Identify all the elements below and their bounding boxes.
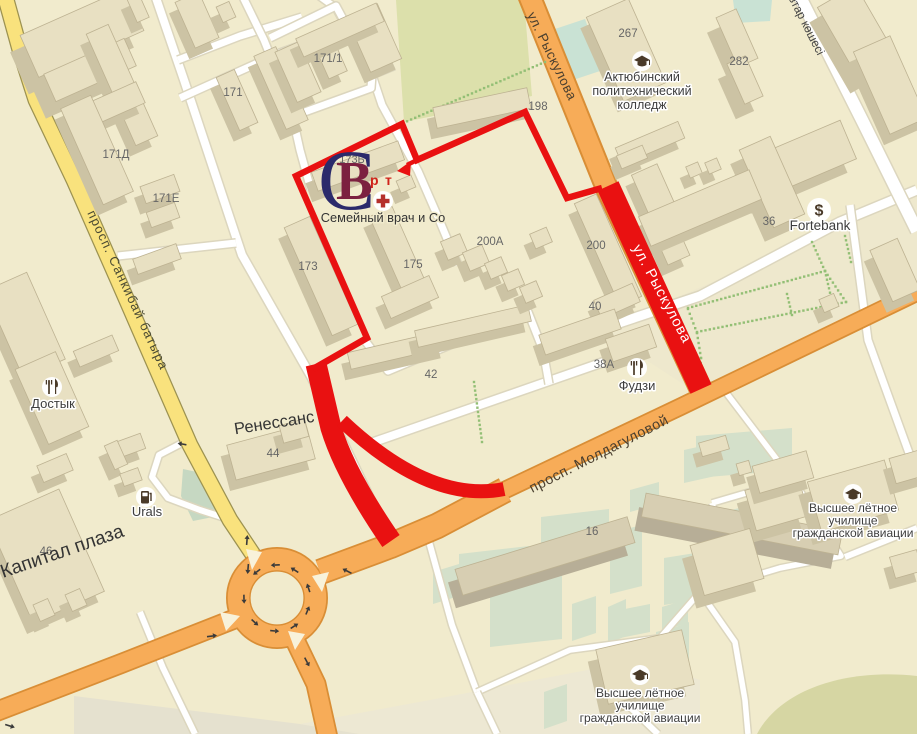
svg-text:200А: 200А — [477, 236, 504, 248]
svg-text:колледж: колледж — [617, 98, 667, 112]
svg-text:267: 267 — [618, 28, 637, 40]
svg-text:Urals: Urals — [132, 504, 163, 519]
svg-text:36: 36 — [763, 216, 776, 228]
svg-text:В: В — [336, 150, 373, 211]
svg-text:р: р — [370, 172, 379, 188]
svg-text:171Д: 171Д — [103, 149, 130, 161]
svg-text:175: 175 — [403, 259, 422, 271]
svg-text:политехнический: политехнический — [592, 84, 691, 98]
svg-text:16: 16 — [586, 526, 599, 538]
svg-text:173: 173 — [298, 261, 317, 273]
svg-text:198: 198 — [528, 101, 547, 113]
svg-text:42: 42 — [425, 369, 438, 381]
svg-text:200: 200 — [586, 240, 605, 252]
svg-text:$: $ — [815, 203, 824, 220]
svg-text:гражданской авиации: гражданской авиации — [793, 526, 914, 540]
svg-text:Достык: Достык — [31, 396, 75, 411]
svg-text:т: т — [385, 172, 392, 188]
svg-text:Фудзи: Фудзи — [619, 378, 656, 393]
svg-text:38А: 38А — [594, 359, 615, 371]
svg-text:гражданской авиации: гражданской авиации — [580, 711, 701, 725]
svg-text:Семейный врач и Со: Семейный врач и Со — [321, 210, 445, 225]
svg-text:171: 171 — [223, 87, 242, 99]
svg-text:282: 282 — [729, 56, 748, 68]
svg-text:Актюбинский: Актюбинский — [604, 70, 680, 84]
svg-text:171Е: 171Е — [153, 193, 180, 205]
svg-text:171/1: 171/1 — [314, 53, 343, 65]
svg-text:Fortebank: Fortebank — [790, 218, 851, 233]
svg-text:40: 40 — [589, 301, 602, 313]
svg-text:44: 44 — [267, 448, 280, 460]
